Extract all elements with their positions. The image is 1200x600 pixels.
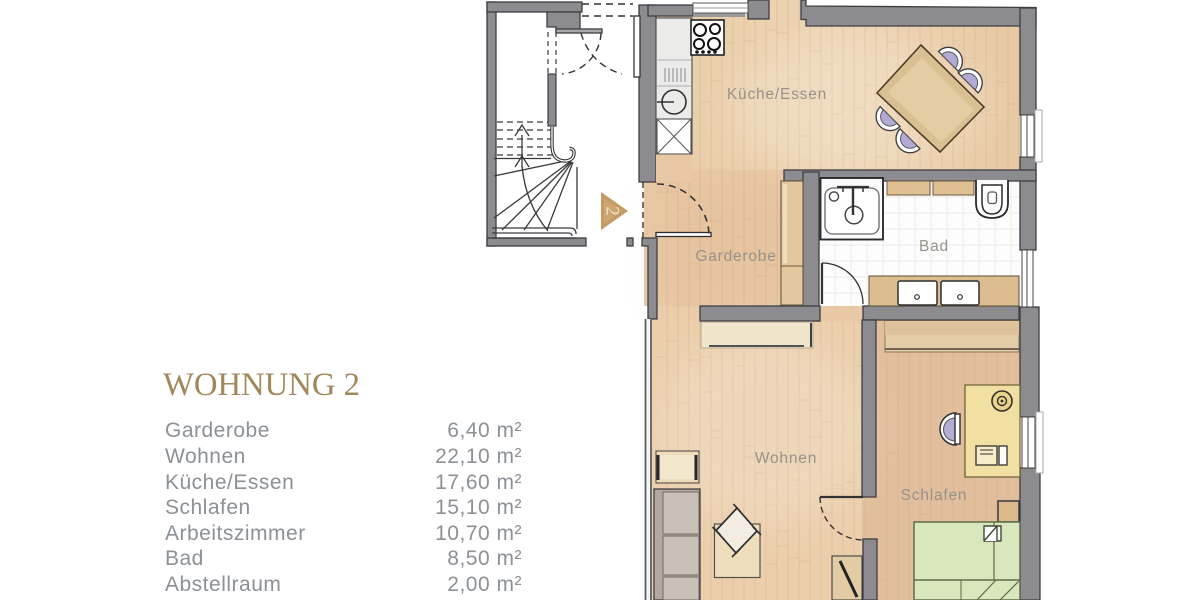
- svg-text:WOHNUNG 2: WOHNUNG 2: [163, 367, 360, 403]
- svg-text:Garderobe: Garderobe: [695, 248, 776, 265]
- svg-text:Schlafen: Schlafen: [901, 487, 968, 504]
- svg-text:2: 2: [602, 206, 623, 216]
- svg-text:6,40 m²: 6,40 m²: [447, 419, 522, 442]
- svg-text:Schlafen: Schlafen: [165, 496, 251, 519]
- svg-text:Abstellraum: Abstellraum: [165, 573, 281, 596]
- svg-text:Küche/Essen: Küche/Essen: [727, 86, 827, 103]
- svg-text:Wohnen: Wohnen: [755, 450, 817, 467]
- svg-text:Arbeitszimmer: Arbeitszimmer: [165, 522, 306, 545]
- svg-text:Wohnen: Wohnen: [165, 445, 246, 468]
- svg-text:Bad: Bad: [919, 238, 949, 255]
- svg-text:22,10 m²: 22,10 m²: [435, 445, 522, 468]
- svg-text:Küche/Essen: Küche/Essen: [165, 471, 294, 494]
- svg-text:15,10 m²: 15,10 m²: [435, 496, 522, 519]
- svg-text:Bad: Bad: [165, 547, 204, 570]
- svg-text:2,00 m²: 2,00 m²: [447, 573, 522, 596]
- svg-text:Garderobe: Garderobe: [165, 419, 270, 442]
- svg-text:17,60 m²: 17,60 m²: [435, 471, 522, 494]
- svg-text:10,70 m²: 10,70 m²: [435, 522, 522, 545]
- svg-text:8,50 m²: 8,50 m²: [447, 547, 522, 570]
